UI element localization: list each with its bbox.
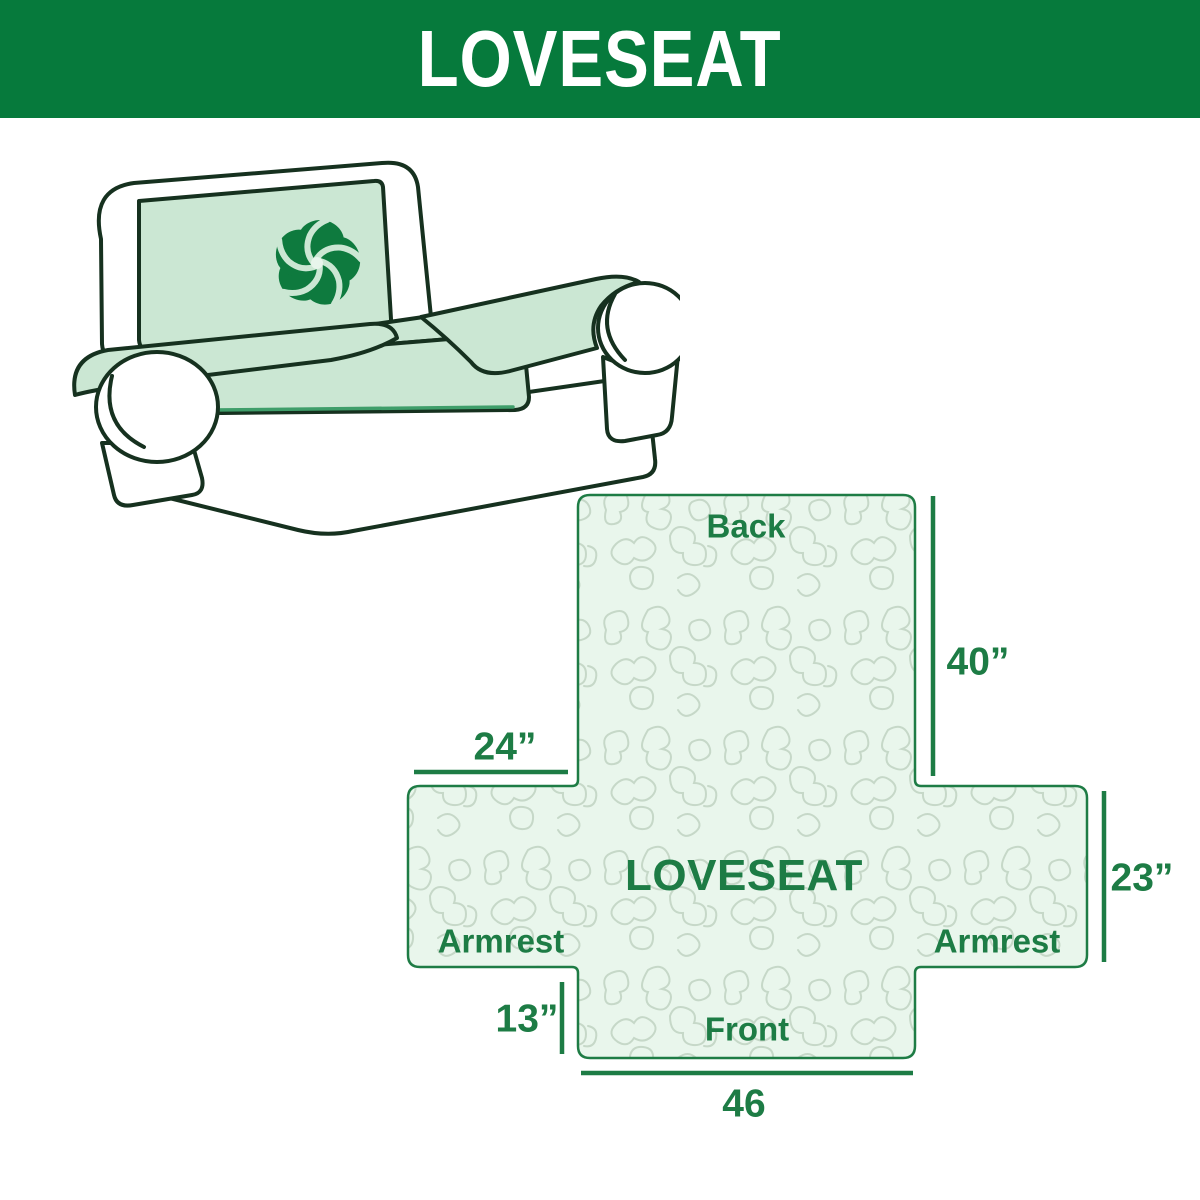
armrest-left-label: Armrest — [438, 925, 565, 958]
armrest-right-label: Armrest — [934, 925, 1061, 958]
dim-13-label: 13” — [496, 1000, 559, 1039]
cover-diagram — [395, 485, 1110, 1080]
sofa-right-arm-cap — [598, 283, 680, 373]
sofa-left-arm-cap — [96, 352, 218, 462]
cover-cross-shape — [408, 495, 1087, 1058]
header-banner: LOVESEAT — [0, 0, 1200, 118]
page-title: LOVESEAT — [418, 19, 782, 99]
dim-23-label: 23” — [1111, 859, 1174, 898]
back-label: Back — [707, 510, 786, 543]
front-label: Front — [705, 1013, 789, 1046]
page: LOVESEAT — [0, 0, 1200, 1200]
dim-46-label: 46 — [722, 1085, 765, 1124]
center-label: LOVESEAT — [625, 854, 863, 898]
dim-40-label: 40” — [947, 643, 1010, 682]
dim-24-label: 24” — [474, 728, 537, 767]
